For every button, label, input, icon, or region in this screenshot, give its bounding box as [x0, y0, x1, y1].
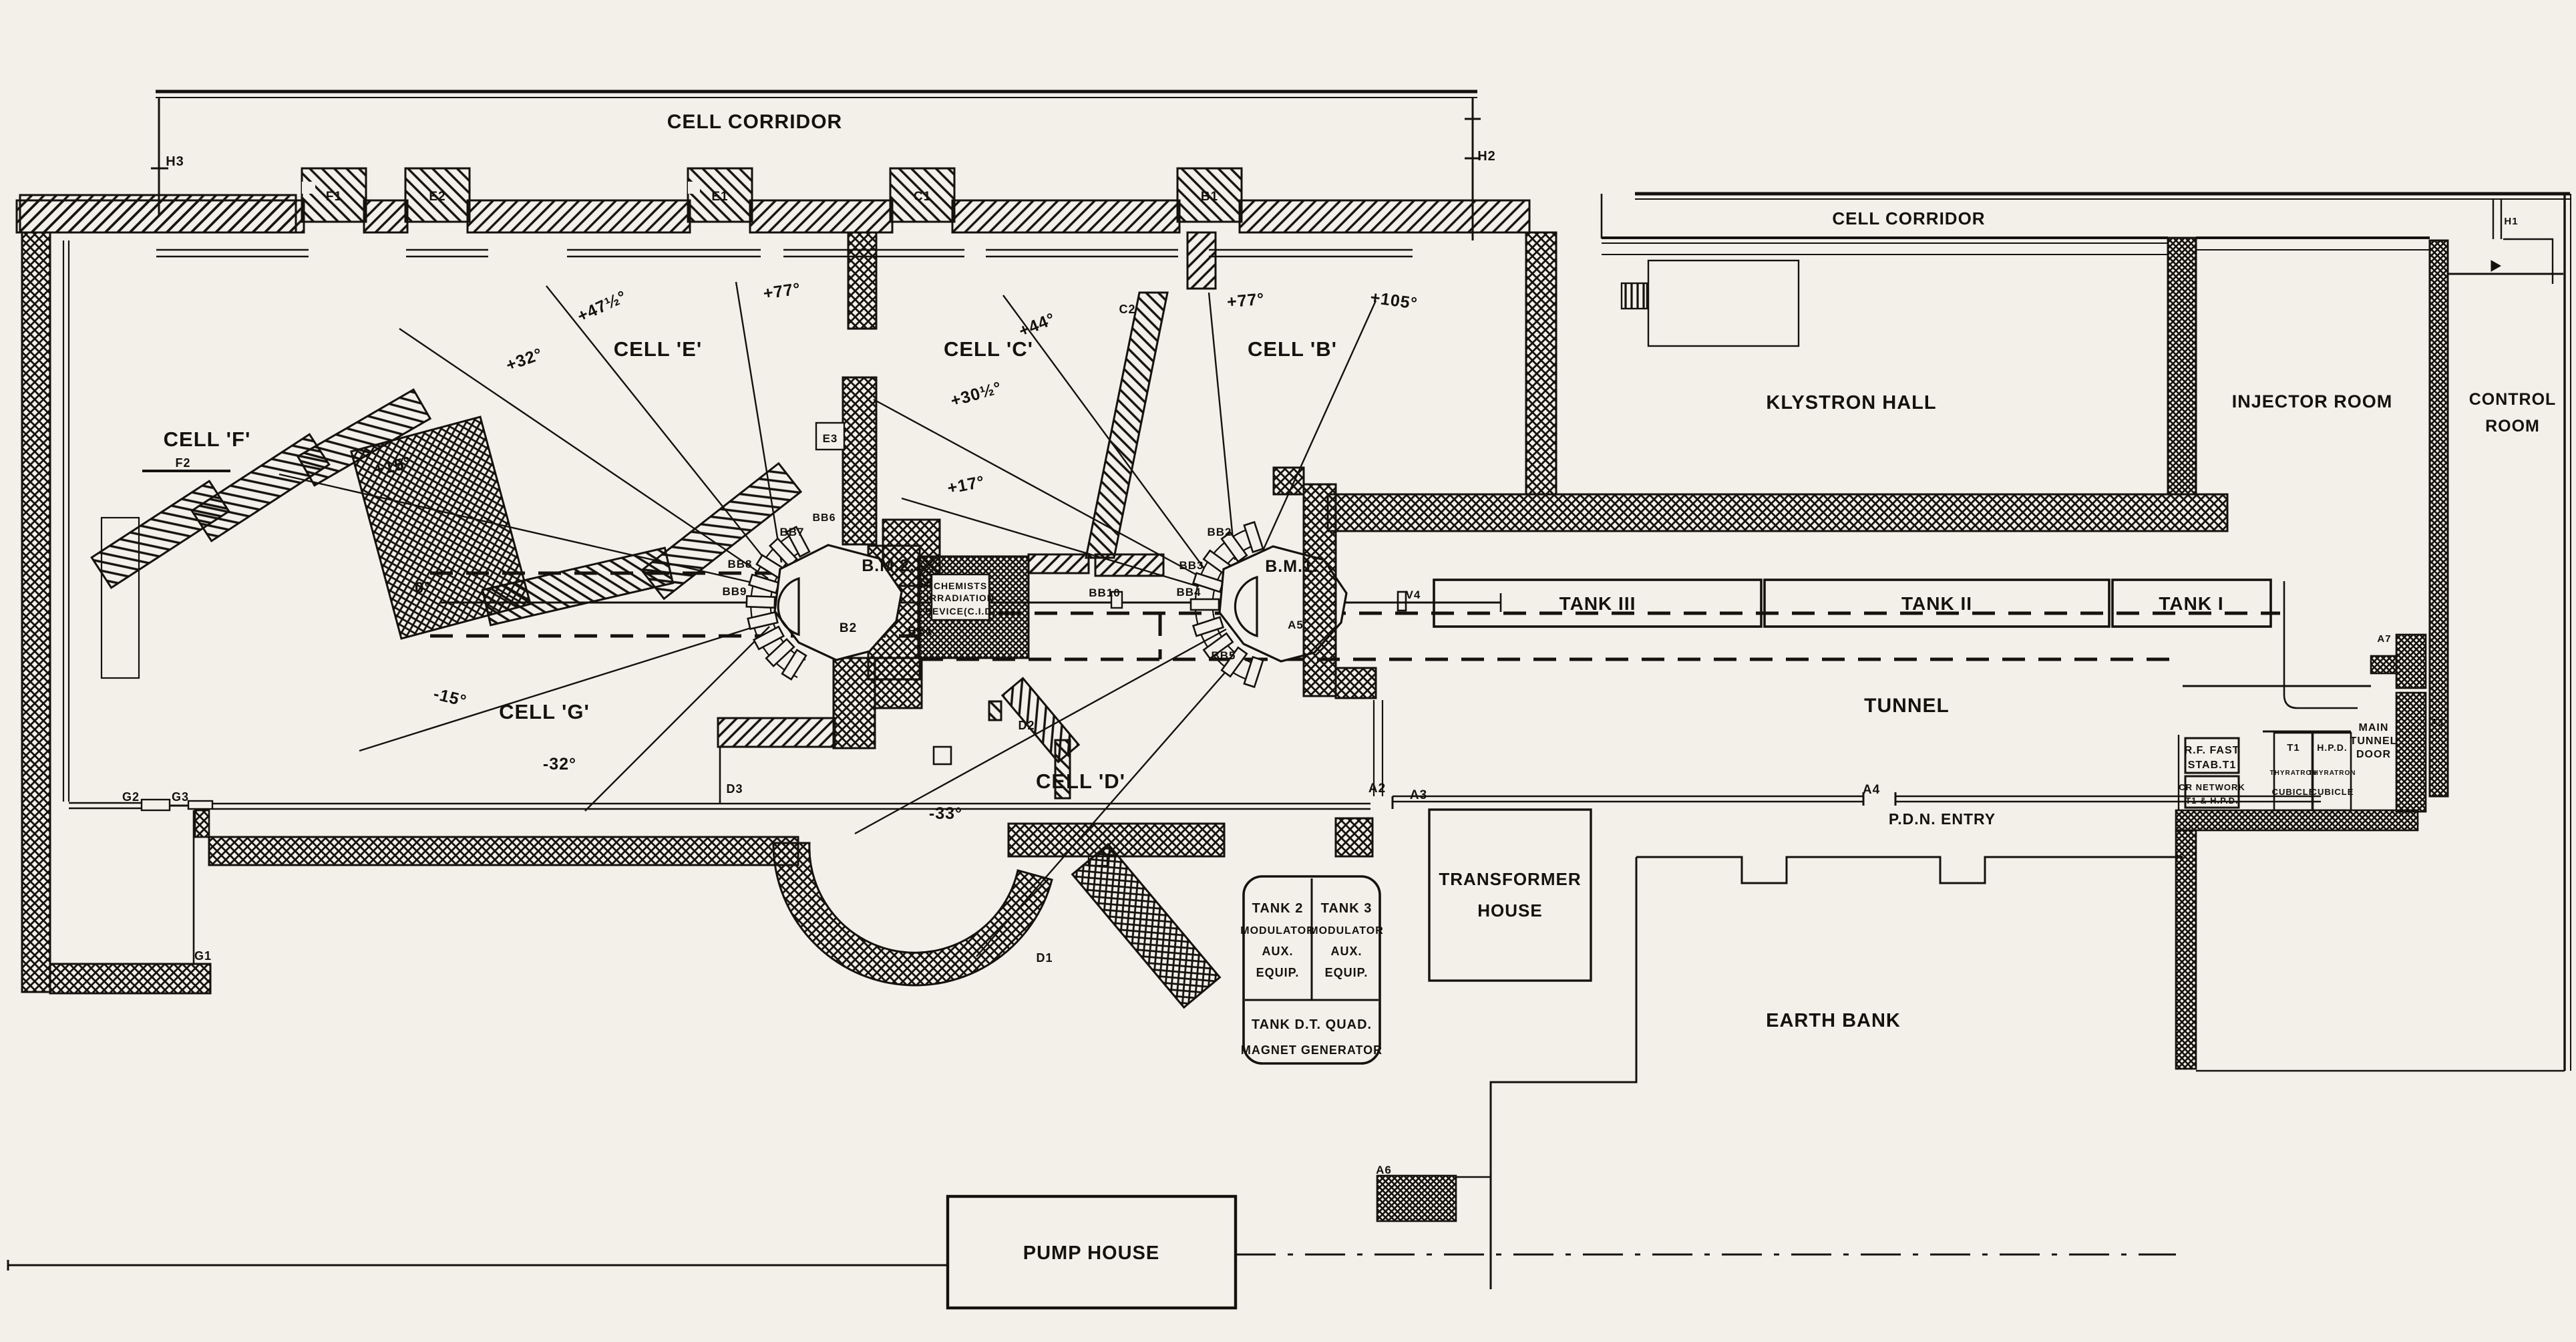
label-injector-room: INJECTOR ROOM	[2232, 391, 2393, 411]
label-a6: A6	[1376, 1164, 1392, 1176]
label-cid-3: DEVICE(C.I.D)	[925, 606, 996, 617]
tunnel-walls	[1274, 232, 2227, 856]
label-a4: A4	[1863, 783, 1880, 797]
label-bb6: BB6	[812, 512, 836, 524]
label-t3mod-3: AUX.	[1330, 945, 1362, 958]
label-b1: B1	[1201, 190, 1218, 204]
label-cid-2: IRRADIATION	[926, 593, 994, 603]
label-e3: E3	[823, 432, 838, 445]
klystron-ladder	[1622, 283, 1647, 309]
transformer-house	[1429, 810, 1591, 981]
label-h3: H3	[166, 154, 184, 169]
label-a7: A7	[2377, 633, 2391, 645]
label-f1: F1	[326, 190, 342, 204]
label-control-room-2: ROOM	[2485, 417, 2540, 436]
label-pump-house: PUMP HOUSE	[1023, 1242, 1159, 1264]
line-p77-right	[1209, 293, 1235, 560]
label-ang-m32: -32°	[543, 755, 576, 774]
label-e2: E2	[429, 190, 445, 204]
label-ang-m33: -33°	[929, 804, 962, 823]
tunnel-door-area	[2176, 635, 2426, 1069]
label-klystron-hall: KLYSTRON HALL	[1766, 392, 1936, 413]
label-ang-p17: +17°	[946, 472, 986, 498]
label-d1: D1	[1036, 951, 1053, 965]
main-tunnel-door	[2396, 693, 2426, 812]
beam-dashed-lines	[430, 573, 2280, 659]
label-cell-c: CELL 'C'	[944, 337, 1033, 361]
gate-g2[interactable]	[142, 800, 170, 810]
label-bb5: BB5	[1211, 649, 1236, 662]
outer-walls-left	[20, 195, 296, 993]
label-hpd-3: CUBICLE	[2311, 787, 2354, 797]
label-ang-0: 0°	[415, 579, 431, 597]
earth-bank-outline	[1636, 857, 2183, 883]
label-transformer-house-1: TRANSFORMER	[1439, 869, 1581, 889]
cell-d-structures	[718, 678, 1224, 1007]
label-rf-2: STAB.T1	[2188, 760, 2236, 771]
label-t2mod-1: TANK 2	[1252, 901, 1304, 916]
label-t2mod-2: MODULATOR	[1240, 925, 1315, 937]
label-ang-m15: -15°	[431, 685, 468, 711]
h1-door	[2503, 239, 2553, 284]
label-e1: E1	[711, 190, 728, 204]
label-mtd-2: TUNNEL	[2350, 735, 2398, 747]
d-shield-bar	[1008, 824, 1224, 856]
label-bb2: BB2	[1207, 526, 1232, 538]
label-tank3: TANK III	[1559, 593, 1636, 614]
label-bb8: BB8	[727, 558, 752, 570]
cell-rails	[156, 250, 1413, 257]
label-t3mod-4: EQUIP.	[1325, 966, 1368, 979]
label-g2: G2	[122, 790, 140, 804]
label-t1cub-3: CUBICLE	[2272, 787, 2316, 797]
label-quad-2: MAGNET GENERATOR	[1241, 1043, 1383, 1057]
label-ang-p77r: +77°	[1226, 290, 1266, 312]
label-t2mod-4: EQUIP.	[1256, 966, 1300, 979]
label-a2: A2	[1368, 782, 1386, 796]
label-cell-f: CELL 'F'	[164, 428, 251, 451]
label-cell-corridor-left: CELL CORRIDOR	[667, 111, 842, 133]
label-cell-g: CELL 'G'	[499, 700, 590, 723]
label-c2: C2	[1119, 303, 1135, 316]
label-mtd-1: MAIN	[2359, 722, 2389, 733]
label-ang-p77l: +77°	[762, 279, 802, 303]
label-bb9: BB9	[722, 585, 747, 598]
label-cell-d: CELL 'D'	[1036, 770, 1125, 793]
label-cell-b: CELL 'B'	[1248, 337, 1337, 361]
label-cr-2: T1 & H.P.D.	[2185, 796, 2238, 806]
floor-plan: CELL CORRIDORCELL CORRIDORKLYSTRON HALLI…	[0, 0, 2576, 1342]
label-tank2: TANK II	[1901, 593, 1972, 614]
right-section-walls	[1602, 194, 2571, 1071]
label-g3: G3	[172, 790, 189, 804]
label-bb1: BB1	[908, 625, 932, 637]
label-a3: A3	[1410, 788, 1427, 802]
label-quad-1: TANK D.T. QUAD.	[1252, 1017, 1372, 1032]
label-d3: D3	[726, 782, 743, 796]
label-control-room-1: CONTROL	[2469, 390, 2557, 409]
shield-arc	[773, 843, 1052, 985]
gate-g3[interactable]	[188, 801, 212, 809]
line-m15	[359, 623, 768, 751]
label-b2: B2	[840, 621, 857, 635]
label-t3mod-1: TANK 3	[1321, 901, 1372, 916]
label-v4: V4	[1406, 589, 1421, 601]
label-ang-p30: +30½°	[948, 378, 1004, 410]
door-arrow	[2491, 261, 2501, 271]
label-h2: H2	[1477, 149, 1496, 164]
central-shield	[816, 232, 1216, 748]
label-bb7: BB7	[779, 526, 804, 538]
label-g1: G1	[194, 949, 212, 963]
label-c1: C1	[914, 190, 931, 204]
label-bb3: BB3	[1179, 559, 1204, 572]
label-hpd-2: THYRATRON	[2308, 770, 2356, 777]
label-bm2: B.M.2.	[862, 556, 915, 575]
label-tunnel: TUNNEL	[1864, 695, 1950, 717]
label-rf-1: R.F. FAST	[2185, 745, 2240, 756]
label-cell-e: CELL 'E'	[614, 337, 702, 361]
label-ang-p32: +32°	[504, 345, 546, 375]
label-t1cub-1: T1	[2287, 742, 2300, 753]
label-cid-1: CHEMISTS	[934, 580, 987, 591]
label-cell-corridor-right: CELL CORRIDOR	[1832, 208, 1985, 228]
moveable-shield-block	[351, 417, 530, 639]
label-hpd-1: H.P.D.	[2317, 742, 2347, 753]
label-ang-p47: +47½°	[574, 287, 630, 326]
label-ang-p44: +44°	[1017, 309, 1059, 341]
label-bb4: BB4	[1176, 586, 1201, 599]
label-cr-1: CR NETWORK	[2179, 782, 2245, 792]
label-bm1: B.M.1.	[1265, 557, 1318, 576]
label-ang-p105: +105°	[1369, 288, 1419, 313]
label-mtd-3: DOOR	[2356, 749, 2391, 760]
label-tank1: TANK I	[2159, 593, 2223, 614]
label-transformer-house-2: HOUSE	[1477, 900, 1542, 920]
label-t2mod-3: AUX.	[1262, 945, 1293, 958]
label-pdn-entry: P.D.N. ENTRY	[1889, 810, 1996, 828]
valve-v4	[1398, 592, 1406, 611]
cell-g-wall	[69, 800, 798, 964]
label-bb10: BB10	[1089, 586, 1120, 599]
label-earth-bank: EARTH BANK	[1766, 1010, 1901, 1031]
label-d2: D2	[1018, 719, 1035, 732]
plan-drawing: CELL CORRIDORCELL CORRIDORKLYSTRON HALLI…	[0, 0, 2576, 1342]
label-a5: A5	[1288, 619, 1304, 631]
label-h1: H1	[2504, 216, 2518, 227]
label-a1: A1	[2430, 717, 2444, 728]
label-t3mod-2: MODULATOR	[1309, 925, 1384, 937]
klystron-inner-room	[1648, 261, 1799, 346]
label-f2: F2	[175, 456, 190, 470]
